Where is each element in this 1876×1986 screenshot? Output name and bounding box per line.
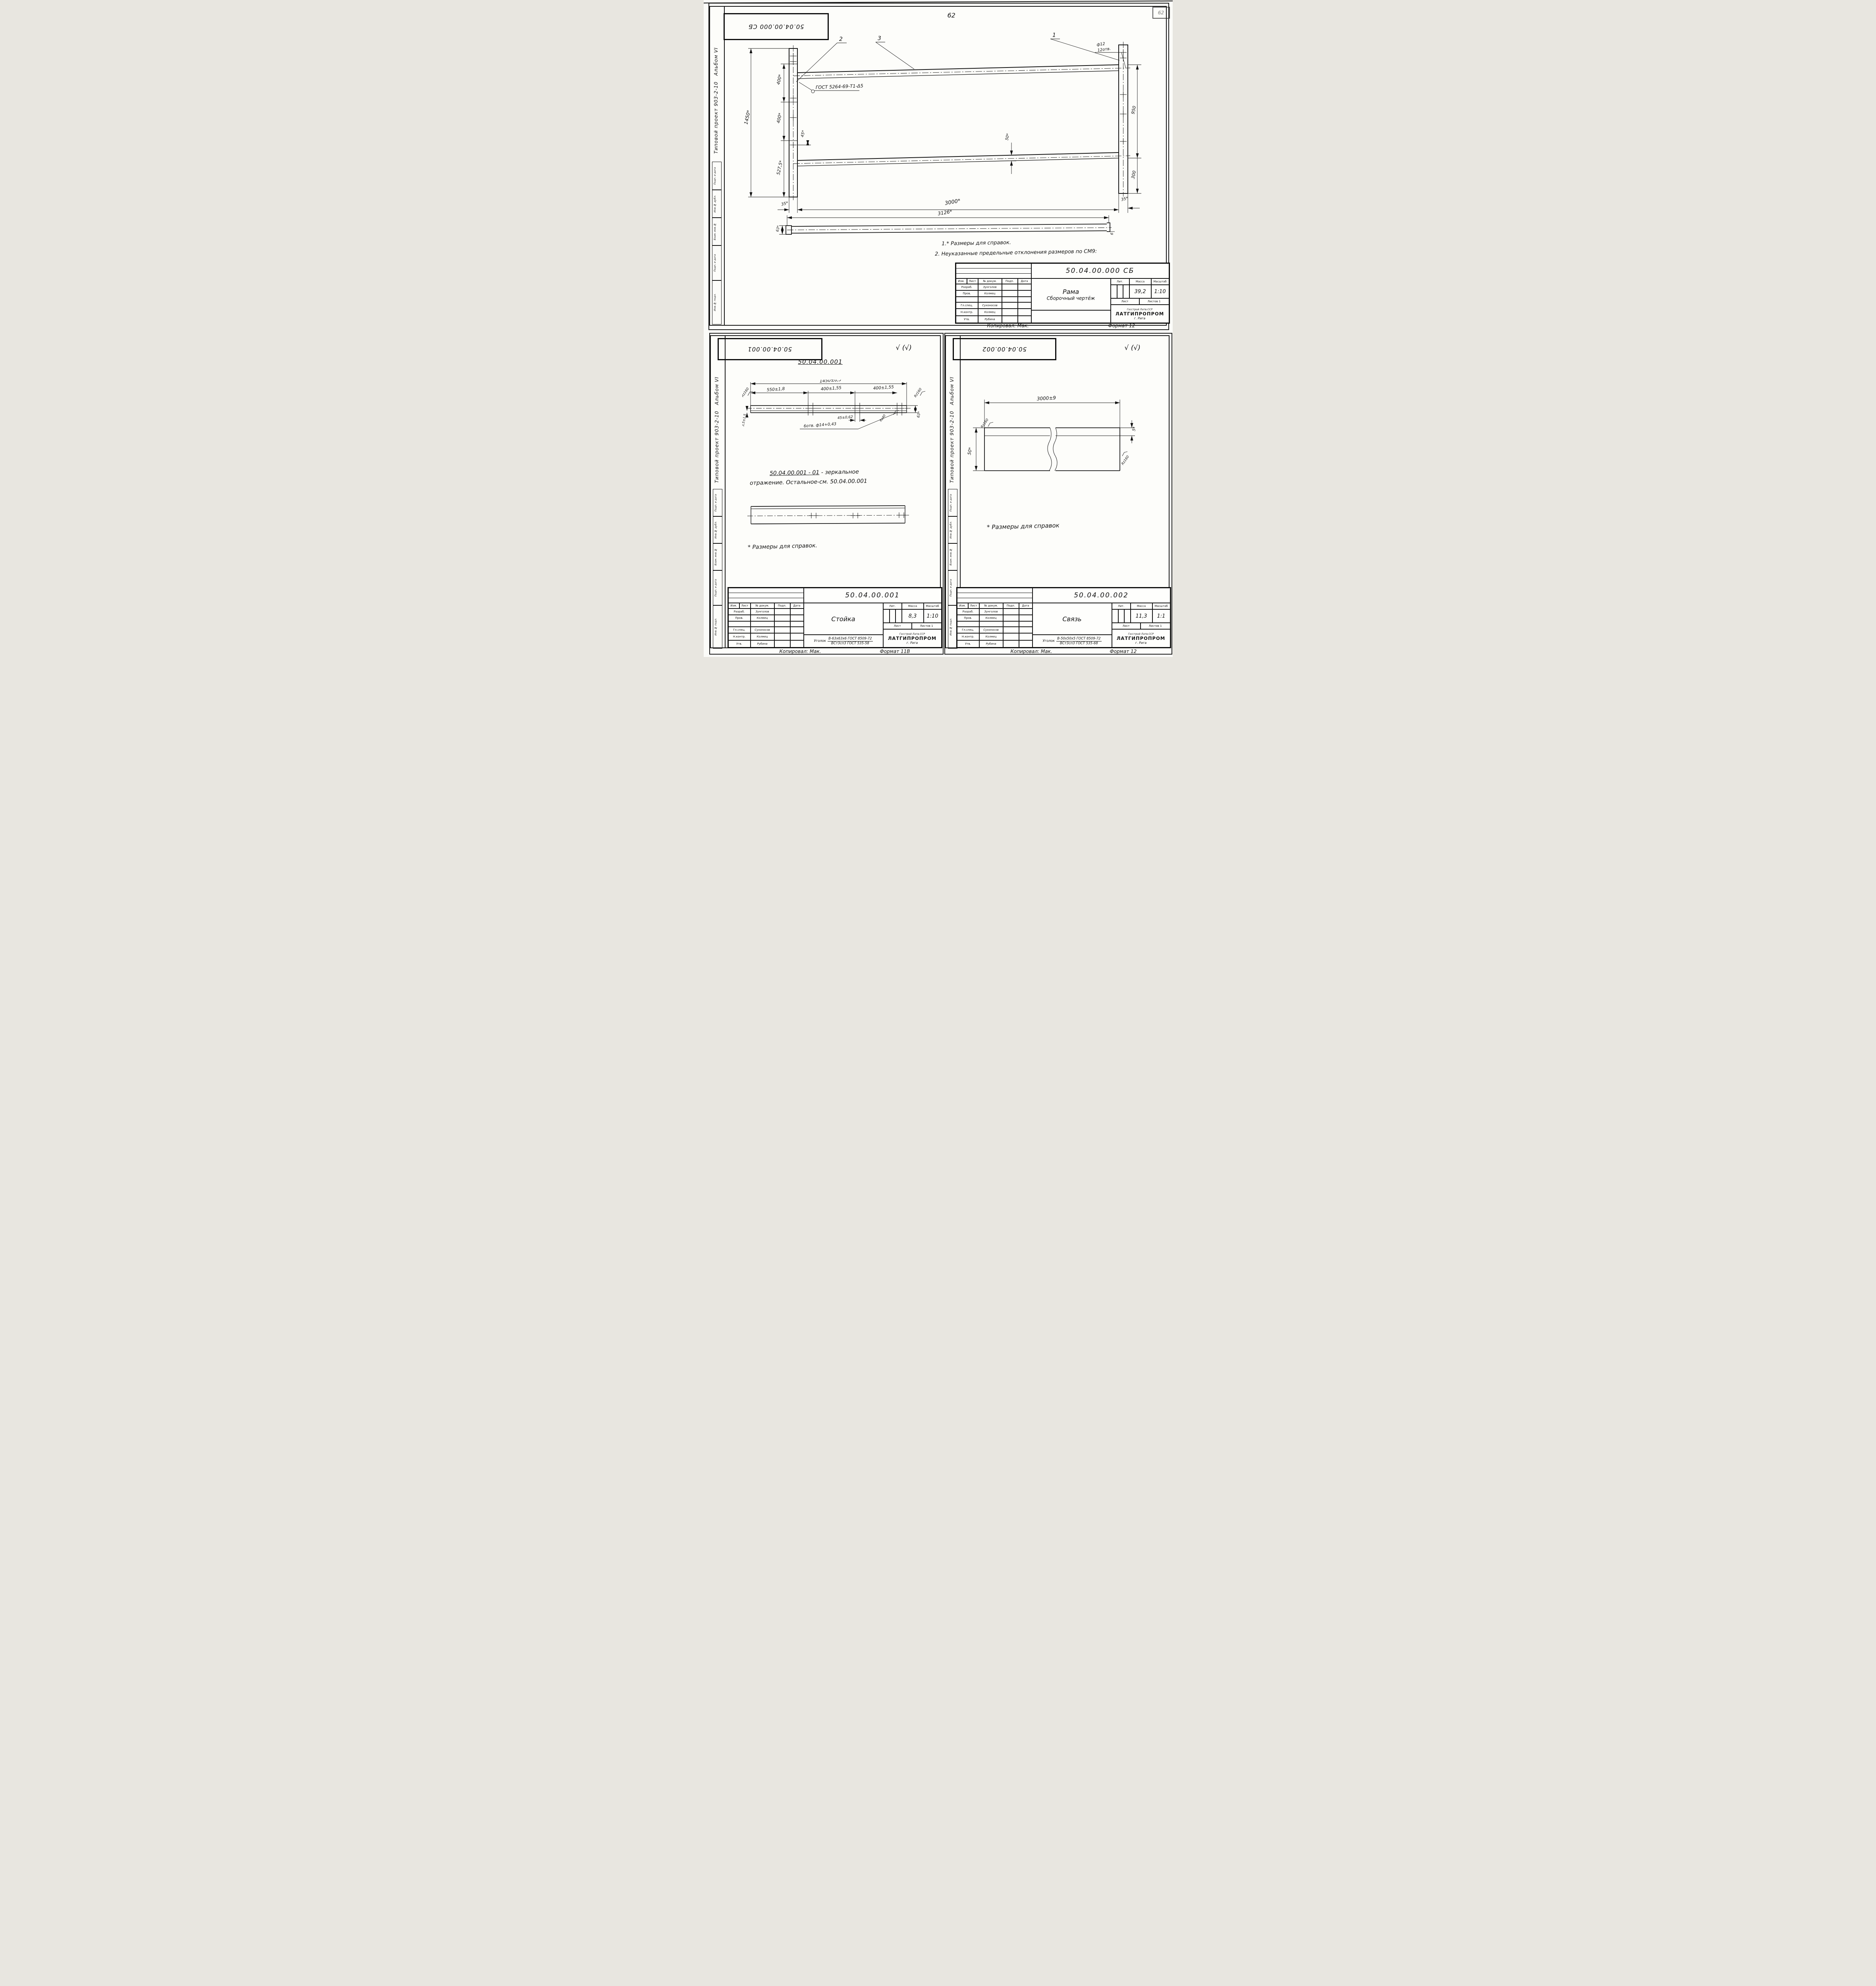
row-name: Колмец xyxy=(979,633,1003,640)
row-name: Зунголов xyxy=(979,609,1003,615)
sidebar-project-label: Типовой проект 903-2-10 Альбом VI xyxy=(714,356,720,483)
dim-400a: 400* xyxy=(776,74,783,85)
sheet-label: Лист xyxy=(1112,623,1141,629)
material-kind: Уголок xyxy=(814,639,826,643)
row-role: Пров. xyxy=(728,615,751,621)
lit-label: Лит. xyxy=(1111,278,1129,285)
doc-number: 50.04.00.001 xyxy=(804,588,942,603)
row-name: Колмец xyxy=(751,615,774,621)
callout-2: 2 xyxy=(839,36,843,43)
rz160-mark-right: Rz160 xyxy=(913,387,923,398)
row-role: Н.контр. xyxy=(728,633,751,640)
frame-sidebar: Типовой проект 903-2-10 Альбом VI Подп. … xyxy=(710,335,726,648)
dia-label: ф12 xyxy=(1096,42,1105,47)
row-name: Колмец xyxy=(978,309,1002,316)
doc-number: 50.04.00.002 xyxy=(1033,588,1170,603)
note-1: 1.* Размеры для справок. xyxy=(941,240,1011,247)
stamp-cell-label: Подп. и дата xyxy=(713,167,716,185)
sheets-label: Листов 1 xyxy=(912,623,942,629)
assembly-drawing: 2 3 1 ГОСТ 5264-69-Т1-Δ5 ф12 12отв. 1450… xyxy=(728,22,1168,237)
mass-label: Масса xyxy=(1131,603,1152,609)
dim-63: 63* xyxy=(917,411,922,418)
dim-35: 3,5±1,5 xyxy=(742,413,747,427)
row-role: Н.контр. xyxy=(957,633,979,640)
sidebar-project-label: Типовой проект 903-2-10 Альбом VI xyxy=(949,356,955,483)
org-authority: Госстрой Латв.ССР xyxy=(899,632,925,636)
project-name: Типовой проект 903-2-10 xyxy=(949,411,955,483)
dim-63: 63* xyxy=(776,225,781,232)
album-name: Альбом VI xyxy=(949,377,955,405)
copied-by: Копировал: Мак. xyxy=(1011,649,1052,654)
format-label: Формат 11В xyxy=(880,649,910,654)
row-name: Сухоносов xyxy=(979,627,1003,633)
mass-label: Масса xyxy=(902,603,924,609)
scale-value: 1:1 xyxy=(1152,609,1170,623)
dim-1450: 1450* xyxy=(743,110,751,125)
mirror-number: 50.04.00.001 - 01 xyxy=(769,469,819,477)
stamp-cell: Инв.№ подл. xyxy=(712,280,722,325)
dim-950: 950 xyxy=(1130,105,1137,114)
sheet-post: Типовой проект 903-2-10 Альбом VI Подп. … xyxy=(709,333,944,655)
org-city: г. Рига xyxy=(1135,641,1146,645)
row-name: Зунголов xyxy=(751,609,774,615)
material-kind: Уголок xyxy=(1042,639,1055,643)
rz160-mark-left: Rz160 xyxy=(742,387,750,398)
dim-45: 45* xyxy=(800,130,806,138)
row-role: Н.контр. xyxy=(956,309,978,316)
doc-type: Сборочный чертёж xyxy=(1047,296,1095,301)
format-label: Формат 12 xyxy=(1108,323,1135,328)
stamp-cell: Подп. и дата xyxy=(948,489,957,517)
sheet-label: Лист xyxy=(883,623,912,629)
row-role: Гл.спец. xyxy=(957,627,979,633)
copied-by: Копировал: Мак. xyxy=(987,323,1029,328)
col-podp: Подп. xyxy=(1002,278,1018,284)
copied-by: Копировал: Мак. xyxy=(780,649,821,654)
stamp-cell-label: Инв.№ подл. xyxy=(713,294,716,311)
titleblock-post: Изм. Лист № докум. Подп. Дата Разраб. Зу… xyxy=(728,587,942,648)
col-podp: Подп. xyxy=(774,603,790,609)
rz160-mark-top: Rz160 xyxy=(980,418,989,429)
col-list: Лист xyxy=(968,603,979,609)
org-name: ЛАТГИПРОПРОМ xyxy=(888,636,936,641)
stamp-cell: Инв.№ дубл. xyxy=(712,189,722,218)
project-name: Типовой проект 903-2-10 xyxy=(714,411,720,483)
part-name: Рама xyxy=(1063,288,1079,296)
doc-number: 50.04.00.000 СБ xyxy=(1031,263,1169,278)
row-role: Утв. xyxy=(728,640,751,647)
stamp-cell: Взам. инв.№ xyxy=(948,543,957,571)
weld-note: ГОСТ 5264-69-Т1-Δ5 xyxy=(815,83,863,90)
tie-drawing: 3000±9 5* 50* Rz160 Rz160 xyxy=(963,392,1146,477)
page-number: 62 xyxy=(948,12,955,19)
post-drawing: 1450±6,5 550±1,8 400±1,55 400±1,55 45±0,… xyxy=(742,380,935,435)
col-list: Лист xyxy=(967,278,978,284)
stamp-cell-label: Инв.№ подл. xyxy=(714,618,717,636)
album-name: Альбом VI xyxy=(714,377,720,405)
mass-label: Масса xyxy=(1129,278,1151,285)
dim-3000: 3000* xyxy=(944,198,961,207)
material-line2: ВСт3сп3 ГОСТ 535-58 xyxy=(828,641,872,646)
lit-label: Лит. xyxy=(883,603,902,609)
mass-value: 39,2 xyxy=(1129,285,1151,298)
scanned-drawing-page: Типовой проект 903-2-10 Альбом VI Подп. … xyxy=(704,0,1173,657)
mass-value: 8,3 xyxy=(902,609,924,623)
dim-400b: 400±1,55 xyxy=(873,384,894,391)
col-izm: Изм. xyxy=(957,603,968,609)
row-name: Колмец xyxy=(751,633,774,640)
sheet-label: Лист xyxy=(1111,298,1139,305)
stamp-cell-label: Подп. и дата xyxy=(714,494,717,512)
org-city: г. Рига xyxy=(1134,317,1145,320)
corner-mark: 62 xyxy=(1158,10,1164,15)
stamp-number: 50.04.00.002 xyxy=(982,346,1027,353)
post-mirrored-view xyxy=(744,504,937,527)
stamp-cell: Подп. и дата xyxy=(713,489,722,517)
row-name: Рубина xyxy=(751,640,774,647)
album-name: Альбом VI xyxy=(713,47,719,75)
rz160-mark-bottom: Rz160 xyxy=(1121,455,1130,466)
col-doc: № докум. xyxy=(979,603,1003,609)
col-izm: Изм. xyxy=(956,278,967,284)
org-name: ЛАТГИПРОПРОМ xyxy=(1116,311,1164,317)
col-date: Дата xyxy=(1018,278,1031,284)
stamp-cell: Инв.№ подл. xyxy=(713,605,722,649)
sheets-label: Листов 1 xyxy=(1139,298,1169,305)
material-line1: В-50х50х5 ГОСТ 8509-72 xyxy=(1056,637,1101,641)
row-role: Гл.спец. xyxy=(728,627,751,633)
stamp-cell: Взам. инв.№ xyxy=(712,217,722,246)
mirror-text: - зеркальное xyxy=(821,469,859,476)
stamp-cell-label: Инв.№ дубл. xyxy=(713,195,716,213)
dim-50: 50* xyxy=(1005,133,1010,141)
stamp-cell: Подп. и дата xyxy=(712,162,722,190)
dim-45: 45±0,62 xyxy=(837,415,853,420)
project-name: Типовой проект 903-2-10 xyxy=(713,81,719,154)
material-line2: ВСт3сп3 ГОСТ 535-68 xyxy=(1056,641,1101,646)
col-izm: Изм. xyxy=(728,603,739,609)
stamp-cell-label: Подп. и дата xyxy=(713,254,716,272)
col-podp: Подп. xyxy=(1003,603,1019,609)
org-name: ЛАТГИПРОПРОМ xyxy=(1117,636,1165,641)
col-doc: № докум. xyxy=(751,603,774,609)
material-line1: В-63х63х6 ГОСТ 8509-72 xyxy=(828,637,872,641)
check-mark: √ (√) xyxy=(1125,344,1141,352)
scale-value: 1:10 xyxy=(1151,285,1169,298)
sidebar-project-label: Типовой проект 903-2-10 Альбом VI xyxy=(713,23,719,154)
col-list: Лист xyxy=(739,603,751,609)
stamp-cell: Подп. и дата xyxy=(713,570,722,606)
scale-value: 1:10 xyxy=(924,609,942,623)
dim-1450: 1450±6,5 xyxy=(819,380,841,384)
stamp-cell: Взам. инв.№ xyxy=(713,543,722,571)
stamp-cell-label: Инв.№ дубл. xyxy=(714,521,717,539)
org-authority: Госстрой Латв.ССР xyxy=(1127,308,1152,311)
row-role: Разраб. xyxy=(957,609,979,615)
stamp-cell-label: Взам. инв.№ xyxy=(714,548,717,565)
dim-550: 550±1,8 xyxy=(766,386,785,392)
titleblock-tie: Изм. Лист № докум. Подп. Дата Разраб. Зу… xyxy=(956,587,1171,648)
inverted-docnumber-stamp: 50.04.00.002 xyxy=(953,338,1056,360)
scale-label: Масштаб xyxy=(1151,278,1169,285)
row-name: Сухоносов xyxy=(751,627,774,633)
dim-50: 50* xyxy=(967,447,973,456)
dim-527: 527,5* xyxy=(776,160,784,175)
stamp-cell: Инв.№ дубл. xyxy=(713,516,722,544)
scale-label: Масштаб xyxy=(1152,603,1170,609)
row-role: Разраб. xyxy=(956,284,978,290)
col-date: Дата xyxy=(790,603,804,609)
stamp-cell-label: Подп. и дата xyxy=(949,579,952,597)
row-name: Рубина xyxy=(979,640,1003,647)
row-role: Гл.спец. xyxy=(956,302,978,309)
stamp-number: 50.04.00.001 xyxy=(747,346,792,353)
callout-1: 1 xyxy=(1052,32,1056,39)
org-authority: Госстрой Латв.ССР xyxy=(1128,632,1154,636)
dim-5: 5* xyxy=(1132,426,1137,431)
row-role: Пров. xyxy=(956,290,978,297)
stamp-cell-label: Инв.№ дубл. xyxy=(949,521,952,539)
dim-400a: 400±1,55 xyxy=(820,385,841,392)
row-role: Утв. xyxy=(956,316,978,323)
sheet-assembly: Типовой проект 903-2-10 Альбом VI Подп. … xyxy=(708,3,1169,330)
dim-35r: 35* xyxy=(1121,196,1129,202)
scale-label: Масштаб xyxy=(924,603,942,609)
row-name: Рубина xyxy=(978,316,1002,323)
row-role: Утв. xyxy=(957,640,979,647)
row-name: Зунголов xyxy=(978,284,1002,290)
row-name: Колмец xyxy=(979,615,1003,621)
stamp-cell-label: Инв.№ подл. xyxy=(949,618,952,636)
dim-3000: 3000±9 xyxy=(1036,395,1056,402)
stamp-cell-label: Взам. инв.№ xyxy=(949,548,952,565)
org-city: г. Рига xyxy=(907,641,918,645)
stamp-cell-label: Подп. и дата xyxy=(949,494,952,512)
holes-note: 6отв. ф14+0,43 xyxy=(803,422,836,429)
stamp-cell: Подп. и дата xyxy=(712,245,722,281)
lit-label: Лит. xyxy=(1112,603,1131,609)
row-role: Разраб. xyxy=(728,609,751,615)
stamp-cell: Инв.№ дубл. xyxy=(948,516,957,544)
format-label: Формат 12 xyxy=(1110,649,1137,654)
dim-300: 300 xyxy=(1130,170,1137,179)
stamp-cell-label: Подп. и дата xyxy=(714,579,717,597)
callout-3: 3 xyxy=(878,35,881,42)
dim-400b: 400* xyxy=(776,112,783,124)
frame-sidebar: Типовой проект 903-2-10 Альбом VI Подп. … xyxy=(709,6,725,326)
inverted-docnumber-stamp: 50.04.00.001 xyxy=(718,338,822,360)
part-name: Стойка xyxy=(831,615,855,623)
row-role: Пров. xyxy=(957,615,979,621)
dim-6: 6 xyxy=(1110,232,1114,236)
mass-value: 11,3 xyxy=(1131,609,1152,623)
stamp-cell-label: Взам. инв.№ xyxy=(713,223,716,240)
material-spec: В-63х63х6 ГОСТ 8509-72 ВСт3сп3 ГОСТ 535-… xyxy=(828,637,872,645)
dia-count-label: 12отв. xyxy=(1097,46,1111,53)
sheet-tie: Типовой проект 903-2-10 Альбом VI Подп. … xyxy=(944,333,1172,655)
row-name: Сухоносов xyxy=(978,302,1002,309)
titleblock-assembly: Изм. Лист № докум. Подп. Дата Разраб. Зу… xyxy=(955,263,1170,324)
rz40-mark: Rz40 xyxy=(879,414,886,422)
check-mark: √ (√) xyxy=(896,344,912,352)
detail-heading: 50.04.00.001 xyxy=(798,358,843,365)
col-date: Дата xyxy=(1019,603,1033,609)
part-name: Связь xyxy=(1062,615,1081,623)
dim-35l: 35* xyxy=(781,201,789,207)
material-spec: В-50х50х5 ГОСТ 8509-72 ВСт3сп3 ГОСТ 535-… xyxy=(1056,637,1101,645)
corner-mark-box: 62 xyxy=(1152,7,1170,19)
row-name: Колмец xyxy=(978,290,1002,297)
sheets-label: Листов 1 xyxy=(1141,623,1170,629)
col-doc: № докум. xyxy=(978,278,1002,284)
